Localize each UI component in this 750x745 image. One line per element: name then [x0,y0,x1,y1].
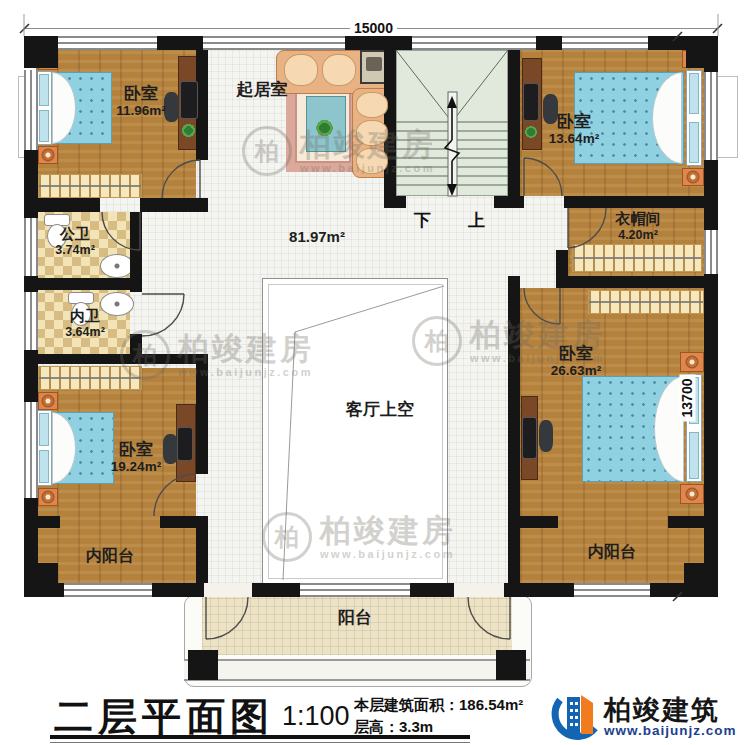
sink [100,254,134,278]
wall-segment [152,583,204,597]
wardrobe [38,174,142,198]
watermark-logo-icon: 柏 [120,330,170,380]
computer-monitor [523,418,536,458]
wall-segment [196,36,208,160]
room-area: 26.63m² [532,363,620,378]
window [704,72,718,160]
title-underline-thin [50,742,470,743]
room-name: 卧室 [528,112,620,131]
window [562,36,648,50]
wall-stub [160,516,208,528]
room-label-bedroom-tl: 卧室 11.96m² [95,84,187,118]
window [64,583,152,597]
room-label-bath-public: 公卫 3.74m² [42,226,108,257]
sheet-notes: 本层建筑面积：186.54m² 层高：3.3m [354,694,523,738]
watermark: 柏 柏竣建房 www.baijunjz.com [120,330,314,380]
room-label-bedroom-r: 卧室 26.63m² [532,344,620,378]
window [574,583,650,597]
wall-stub [508,516,558,528]
nightstand [38,392,58,410]
wall-segment [252,583,300,597]
floor-height-note: 层高：3.3m [354,716,523,738]
wall-segment [504,583,574,597]
sofa-cushion [322,54,356,86]
watermark-brand: 柏竣建房 [320,515,456,546]
room-area: 3.64m² [52,325,118,339]
nightstand [682,168,704,186]
room-name: 卧室 [532,344,620,363]
wall-segment [536,36,562,50]
wall-corner [24,563,58,597]
wardrobe [572,244,702,272]
room-area: 13.64m² [528,131,620,146]
window [704,230,718,274]
wall-stub [36,516,60,528]
floor-height-value: 3.3m [399,718,433,735]
watermark-brand: 柏竣建房 [178,333,314,364]
brand-website: www.baijunjz.com [604,723,737,738]
room-name: 卧室 [95,84,187,103]
watermark-site: www.baijunjz.com [320,548,456,560]
wall-stub [668,516,706,528]
stairs-down-label: 下 [414,209,431,232]
sheet-scale: 1:100 [282,701,350,732]
window [24,402,38,498]
wall-segment [410,583,454,597]
wall-segment [36,198,100,212]
balcony-column [496,650,526,680]
bed-headboard [36,410,52,486]
watermark-logo-icon: 柏 [242,126,292,176]
room-name: 内卫 [52,308,118,325]
window [412,36,536,50]
room-area: 4.20m² [595,228,681,242]
side-cabinet-top [366,57,382,71]
room-label-bedroom-tr: 卧室 13.64m² [528,112,620,146]
wall-segment [36,278,130,290]
door-opening [454,583,504,597]
wall-segment [560,276,718,288]
wall-segment [704,160,718,230]
room-name: 卧室 [90,440,182,459]
wall-segment [345,36,412,50]
door-opening [204,583,252,597]
dimension-right: 13700 [679,375,695,422]
room-name: 客厅上空 [300,400,460,419]
floor-height-label: 层高： [354,718,399,735]
nightstand [680,352,704,372]
nightstand [680,484,704,504]
window [24,70,38,150]
watermark-logo-icon: 柏 [262,512,312,562]
floor-area-value: 186.54m² [459,696,523,713]
wall-segment [140,198,208,212]
room-name: 内阳台 [68,547,152,565]
inner-balcony-left-label: 内阳台 [68,547,152,565]
watermark-site: www.baijunjz.com [300,162,436,174]
void-label: 客厅上空 [300,400,460,419]
wall-segment [508,36,520,196]
room-area: 81.97m² [272,229,362,246]
balcony-column [188,650,218,680]
floor-area-note: 本层建筑面积：186.54m² [354,694,523,716]
watermark-site: www.baijunjz.com [178,366,314,378]
brand-logo-icon [548,688,600,742]
inner-balcony-right-label: 内阳台 [570,543,654,561]
room-name: 阳台 [322,608,388,627]
watermark-brand: 柏竣建房 [300,129,436,160]
room-label-living: 起居室 [222,80,302,99]
room-area: 11.96m² [95,103,187,118]
bed-headboard [36,71,52,145]
watermark: 柏 柏竣建房 www.baijunjz.com [262,512,456,562]
sofa-cushion [356,92,388,118]
wall-segment [704,274,718,597]
balcony-label: 阳台 [322,608,388,627]
window [58,36,157,50]
wall-corner [24,36,58,68]
wall-segment [130,212,142,292]
floor-plan-sheet: 15000 13700 [0,0,750,745]
floor-area-label: 本层建筑面积： [354,696,459,713]
wardrobe [588,290,704,314]
window [203,36,345,50]
wall-corner [684,563,718,597]
window [300,583,410,597]
room-label-cloakroom: 衣帽间 4.20m² [595,211,681,242]
hall-area-label: 81.97m² [272,229,362,246]
wall-segment [704,36,718,72]
room-area: 3.74m² [42,243,108,257]
dimension-top: 15000 [350,20,397,36]
wall-segment [564,196,718,208]
room-name: 内阳台 [570,543,654,561]
window [24,218,38,276]
wall-stub [384,196,406,208]
bed-headboard [686,70,702,166]
window [24,292,38,350]
wall-stub [494,196,524,208]
room-area: 19.24m² [90,459,182,474]
balcony-railing [184,659,530,681]
desk-chair [539,420,553,452]
nightstand [38,488,58,506]
room-label-bath-private: 内卫 3.64m² [52,308,118,339]
plant [182,124,195,137]
watermark: 柏 柏竣建房 www.baijunjz.com [242,126,436,176]
room-label-bedroom-bl: 卧室 19.24m² [90,440,182,474]
room-name: 公卫 [42,226,108,243]
room-name: 起居室 [222,80,302,99]
room-name: 衣帽间 [595,211,681,228]
stairs-up-label: 上 [468,209,485,232]
nightstand [38,146,58,164]
watermark-logo-icon: 柏 [412,316,462,366]
